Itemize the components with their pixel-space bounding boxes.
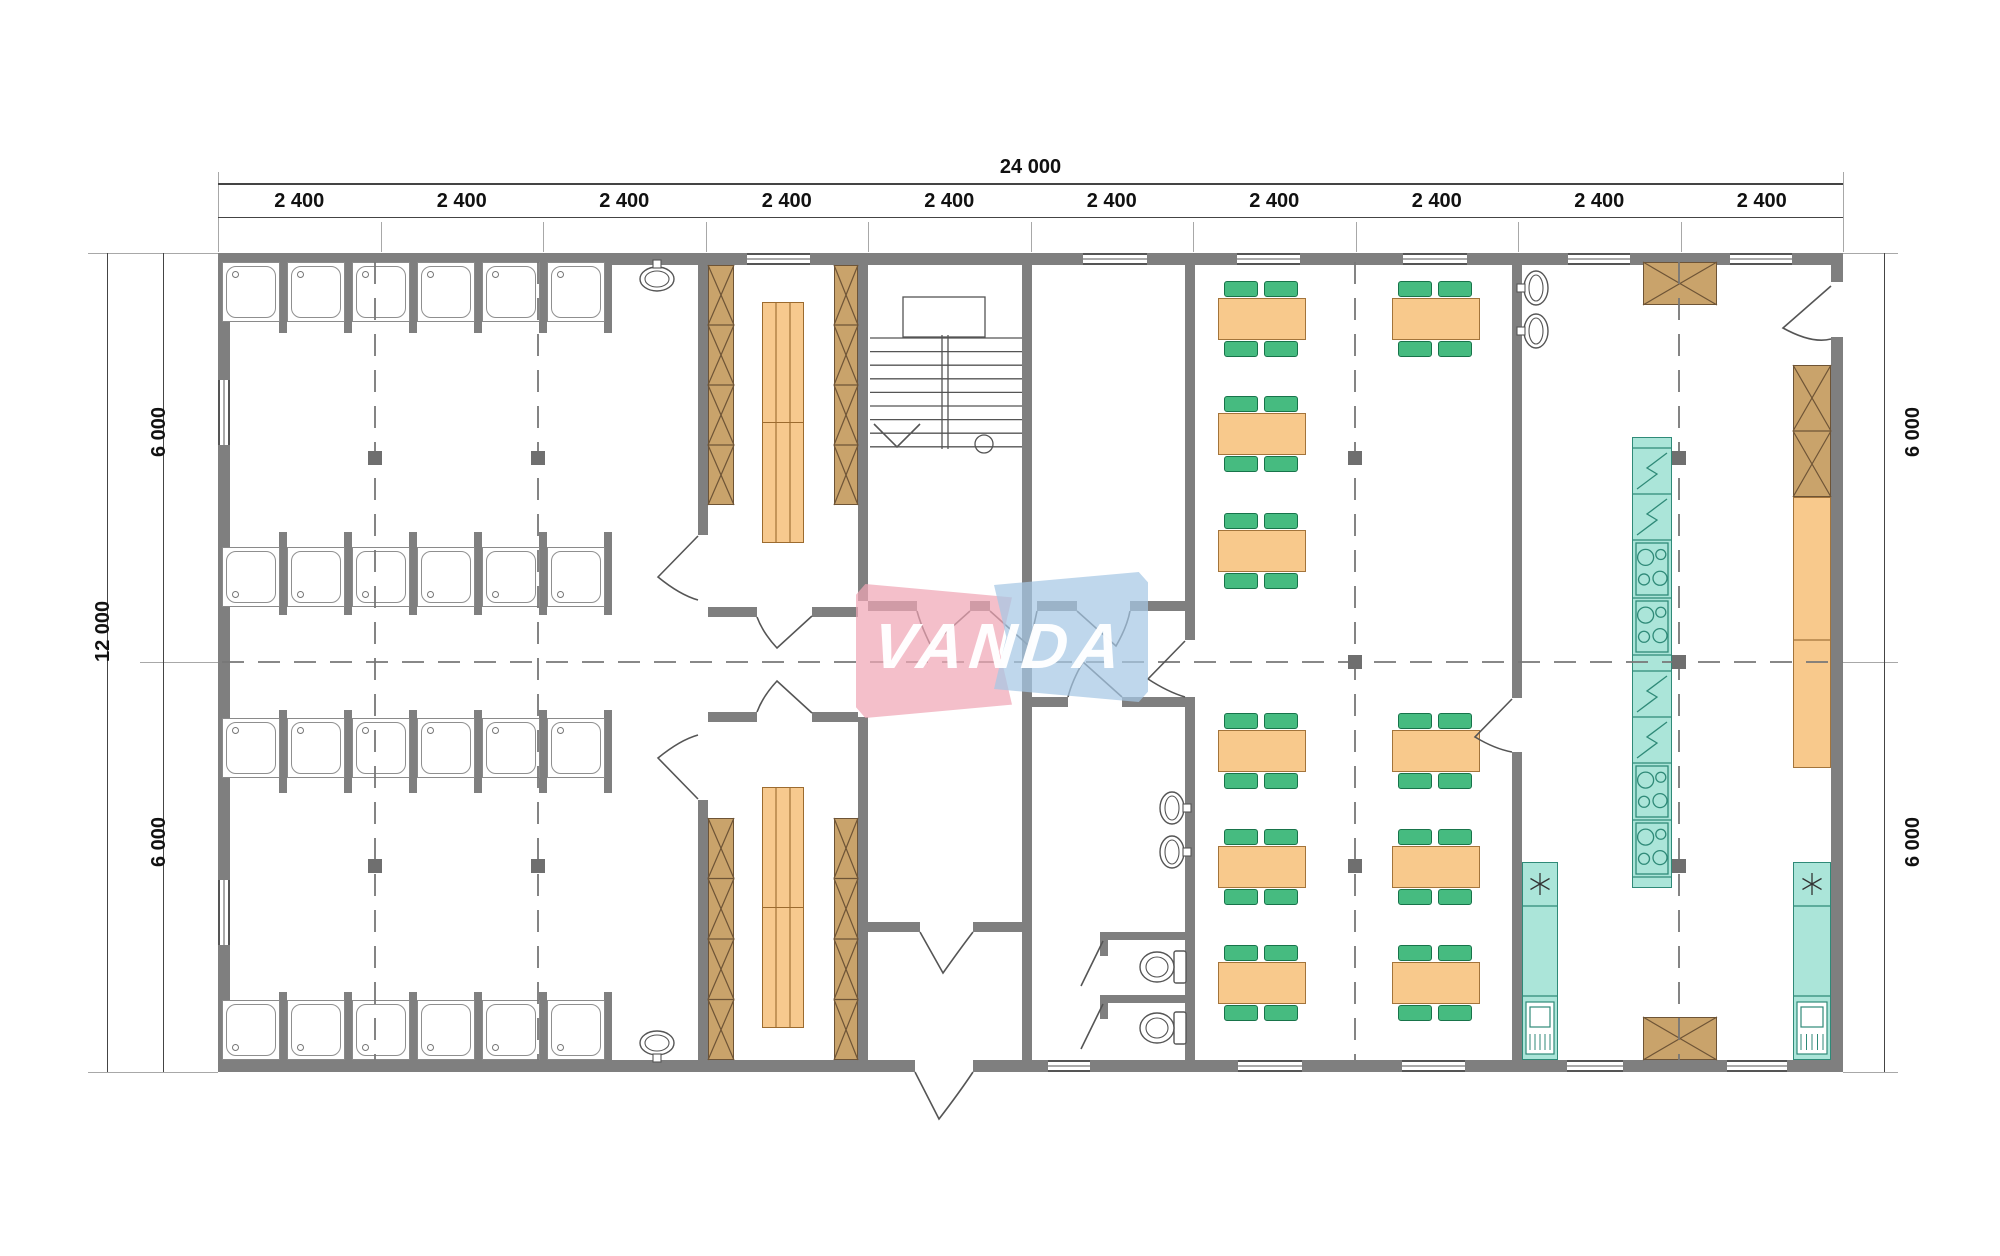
chair — [1398, 713, 1432, 729]
shower-cabin — [482, 1000, 540, 1060]
dim-line-segments — [218, 217, 1843, 218]
column-marker — [368, 859, 382, 873]
chair — [1438, 281, 1472, 297]
drain-icon — [427, 727, 434, 734]
chair — [1224, 396, 1258, 412]
wardrobe-cabinet — [708, 818, 734, 1060]
column-marker — [531, 859, 545, 873]
window — [1402, 1060, 1465, 1072]
wall-segment — [812, 712, 858, 722]
shower-partition-wall — [344, 532, 352, 615]
dining-table — [1392, 298, 1480, 340]
window — [1238, 1060, 1302, 1072]
chair — [1224, 573, 1258, 589]
chair — [1264, 713, 1298, 729]
chair — [1264, 513, 1298, 529]
dining-table — [1218, 846, 1306, 888]
window — [1567, 1060, 1623, 1072]
column-marker — [1348, 451, 1362, 465]
wall-segment — [708, 607, 757, 617]
chair — [1398, 829, 1432, 845]
drain-icon — [297, 1044, 304, 1051]
chair — [1398, 773, 1432, 789]
chair — [1224, 1005, 1258, 1021]
chair — [1438, 1005, 1472, 1021]
chair — [1264, 456, 1298, 472]
drain-icon — [297, 271, 304, 278]
shower-cabin — [222, 718, 280, 778]
dim-extension — [1681, 222, 1682, 252]
drain-icon — [427, 591, 434, 598]
drain-icon — [492, 591, 499, 598]
drain-icon — [427, 1044, 434, 1051]
dim-extension — [381, 222, 382, 252]
wall-segment — [1185, 697, 1195, 1060]
wardrobe-cabinet — [708, 265, 734, 505]
drain-icon — [297, 727, 304, 734]
door-swing — [757, 616, 812, 648]
dim-label-segment: 2 400 — [381, 190, 544, 212]
dim-label-segment: 2 400 — [1681, 190, 1844, 212]
watermark-text: VANDA — [835, 600, 1165, 692]
column-marker — [1348, 655, 1362, 669]
shower-partition-wall — [344, 710, 352, 793]
shower-cabin — [222, 547, 280, 607]
kitchen-sink-unit — [1793, 862, 1831, 1060]
chair — [1264, 889, 1298, 905]
toilet — [1140, 1012, 1186, 1044]
shower-cabin — [482, 718, 540, 778]
door-swing — [915, 1072, 973, 1119]
ventilation-hood — [1643, 262, 1717, 305]
door-swing — [757, 681, 812, 713]
shower-partition-wall — [279, 992, 287, 1060]
shower-cabin — [222, 1000, 280, 1060]
dim-label-segment: 2 400 — [1518, 190, 1681, 212]
door-swing — [920, 932, 973, 973]
wall-segment — [218, 253, 230, 1072]
shower-cabin — [352, 1000, 410, 1060]
ventilation-hood — [1643, 1017, 1717, 1060]
shower-partition-wall — [344, 992, 352, 1060]
dim-extension — [1193, 222, 1194, 252]
dim-label-total-width: 24 000 — [218, 156, 1843, 178]
dim-extension — [868, 222, 869, 252]
chair — [1224, 513, 1258, 529]
shower-cabin — [482, 262, 540, 322]
wall-segment — [1100, 1003, 1108, 1019]
column-marker — [531, 451, 545, 465]
shower-cabin — [417, 1000, 475, 1060]
door-opening — [1831, 282, 1843, 337]
chair — [1438, 713, 1472, 729]
wardrobe-cabinet — [1793, 365, 1831, 497]
dim-label-segment: 2 400 — [1031, 190, 1194, 212]
chair — [1264, 773, 1298, 789]
dim-extension — [1843, 662, 1898, 663]
shower-cabin — [287, 1000, 345, 1060]
chair — [1438, 341, 1472, 357]
drain-icon — [232, 591, 239, 598]
dim-label-segment: 2 400 — [868, 190, 1031, 212]
dining-table — [1218, 530, 1306, 572]
wall-segment — [698, 265, 708, 535]
shower-partition-wall — [539, 265, 547, 333]
dining-table — [1218, 413, 1306, 455]
dim-line-left-outer — [107, 253, 108, 1072]
wall-segment — [1032, 697, 1068, 707]
window — [218, 880, 230, 945]
shower-cabin — [287, 718, 345, 778]
wall-segment — [698, 800, 708, 1060]
dim-extension — [1843, 172, 1844, 252]
dim-extension — [1031, 222, 1032, 252]
shower-partition-wall — [279, 710, 287, 793]
drain-icon — [297, 591, 304, 598]
column-marker — [1672, 655, 1686, 669]
wall-segment — [858, 265, 868, 601]
drain-icon — [362, 727, 369, 734]
door-swing — [658, 536, 698, 600]
wall-segment — [708, 712, 757, 722]
chair — [1264, 829, 1298, 845]
dining-table — [1218, 730, 1306, 772]
dim-line-right — [1884, 253, 1885, 1072]
dim-label-segment: 2 400 — [543, 190, 706, 212]
shower-cabin — [417, 718, 475, 778]
window — [747, 253, 810, 265]
drain-icon — [232, 1044, 239, 1051]
chair — [1224, 341, 1258, 357]
wall-segment — [1100, 932, 1185, 940]
window — [1048, 1060, 1090, 1072]
chair — [1224, 773, 1258, 789]
bench — [762, 302, 804, 543]
shower-cabin — [547, 262, 605, 322]
chair — [1438, 773, 1472, 789]
door-swing — [658, 735, 698, 799]
shower-partition-wall — [344, 265, 352, 333]
dim-extension — [543, 222, 544, 252]
drain-icon — [557, 1044, 564, 1051]
chair — [1224, 281, 1258, 297]
drain-icon — [362, 591, 369, 598]
dim-label-segment: 2 400 — [1356, 190, 1519, 212]
floor-plan: VANDA 24 0002 4002 4002 4002 4002 4002 4… — [0, 0, 2000, 1256]
wall-segment — [1831, 253, 1843, 1072]
shower-cabin — [417, 262, 475, 322]
chair — [1224, 829, 1258, 845]
shower-partition-wall — [474, 710, 482, 793]
door-swing — [1783, 286, 1831, 340]
dim-label-segment: 2 400 — [706, 190, 869, 212]
wardrobe-cabinet — [834, 818, 858, 1060]
shower-cabin — [547, 718, 605, 778]
chair — [1224, 945, 1258, 961]
shower-partition-wall — [279, 532, 287, 615]
window — [1237, 253, 1300, 265]
window — [1727, 1060, 1787, 1072]
chair — [1264, 396, 1298, 412]
shower-partition-wall — [474, 265, 482, 333]
shower-cabin — [352, 262, 410, 322]
dining-table — [1218, 298, 1306, 340]
drain-icon — [557, 271, 564, 278]
kitchen-tall-cabinet — [1793, 497, 1831, 768]
wall-segment — [1100, 995, 1185, 1003]
shower-partition-wall — [409, 710, 417, 793]
dim-extension — [140, 662, 218, 663]
shower-partition-wall — [279, 265, 287, 333]
column-marker — [1672, 451, 1686, 465]
chair — [1264, 281, 1298, 297]
chair — [1438, 889, 1472, 905]
bench — [762, 787, 804, 1028]
window — [1403, 253, 1467, 265]
chair — [1398, 945, 1432, 961]
chair — [1264, 573, 1298, 589]
wall-segment — [1512, 265, 1522, 698]
wash-basin — [640, 1031, 674, 1062]
shower-partition-wall — [539, 992, 547, 1060]
shower-cabin — [222, 262, 280, 322]
shower-partition-wall — [539, 710, 547, 793]
drain-icon — [362, 1044, 369, 1051]
dim-label-segment: 2 400 — [218, 190, 381, 212]
dining-table — [1218, 962, 1306, 1004]
wall-segment — [1100, 940, 1108, 956]
dim-extension — [706, 222, 707, 252]
shower-cabin — [482, 547, 540, 607]
kitchen-sink-unit — [1522, 862, 1558, 1060]
chair — [1224, 713, 1258, 729]
shower-cabin — [287, 262, 345, 322]
drain-icon — [557, 591, 564, 598]
column-marker — [1348, 859, 1362, 873]
column-marker — [368, 451, 382, 465]
dining-table — [1392, 730, 1480, 772]
drain-icon — [492, 727, 499, 734]
dim-line-overall — [218, 183, 1843, 185]
dining-table — [1392, 846, 1480, 888]
staircase — [870, 297, 1022, 453]
toilet — [1140, 951, 1186, 983]
chair — [1398, 281, 1432, 297]
chair — [1398, 1005, 1432, 1021]
door-swing — [1475, 699, 1512, 752]
chair — [1264, 341, 1298, 357]
shower-cabin — [352, 718, 410, 778]
shower-cabin — [287, 547, 345, 607]
dim-label-segment: 2 400 — [1193, 190, 1356, 212]
shower-partition-wall — [474, 992, 482, 1060]
shower-partition-wall — [409, 532, 417, 615]
chair — [1224, 889, 1258, 905]
dim-line-left-inner — [163, 253, 164, 1072]
shower-partition-wall — [474, 532, 482, 615]
shower-cabin — [417, 547, 475, 607]
dim-extension — [1518, 222, 1519, 252]
chair — [1398, 341, 1432, 357]
window — [1568, 253, 1630, 265]
window — [218, 380, 230, 445]
wall-segment — [973, 922, 1027, 932]
chair — [1264, 945, 1298, 961]
shower-partition-wall — [604, 532, 612, 615]
wall-segment — [1512, 752, 1522, 1060]
wall-segment — [862, 922, 920, 932]
drain-icon — [557, 727, 564, 734]
dim-extension — [1843, 253, 1898, 254]
drain-icon — [232, 271, 239, 278]
door-opening — [915, 1060, 973, 1072]
drain-icon — [427, 271, 434, 278]
chair — [1224, 456, 1258, 472]
dim-extension — [1843, 1072, 1898, 1073]
shower-partition-wall — [409, 265, 417, 333]
drain-icon — [232, 727, 239, 734]
shower-partition-wall — [604, 710, 612, 793]
dim-extension — [88, 1072, 218, 1073]
drain-icon — [362, 271, 369, 278]
dim-extension — [1356, 222, 1357, 252]
shower-partition-wall — [604, 265, 612, 333]
dining-table — [1392, 962, 1480, 1004]
column-marker — [1672, 859, 1686, 873]
window — [1730, 253, 1792, 265]
shower-partition-wall — [604, 992, 612, 1060]
drain-icon — [492, 271, 499, 278]
kitchen-appliance-column — [1632, 437, 1672, 888]
shower-cabin — [547, 1000, 605, 1060]
drain-icon — [492, 1044, 499, 1051]
shower-partition-wall — [539, 532, 547, 615]
wall-segment — [1185, 265, 1195, 640]
chair — [1398, 889, 1432, 905]
chair — [1264, 1005, 1298, 1021]
shower-cabin — [547, 547, 605, 607]
window — [1083, 253, 1147, 265]
chair — [1438, 945, 1472, 961]
wardrobe-cabinet — [834, 265, 858, 505]
shower-partition-wall — [409, 992, 417, 1060]
shower-cabin — [352, 547, 410, 607]
chair — [1438, 829, 1472, 845]
wall-segment — [858, 717, 868, 1060]
